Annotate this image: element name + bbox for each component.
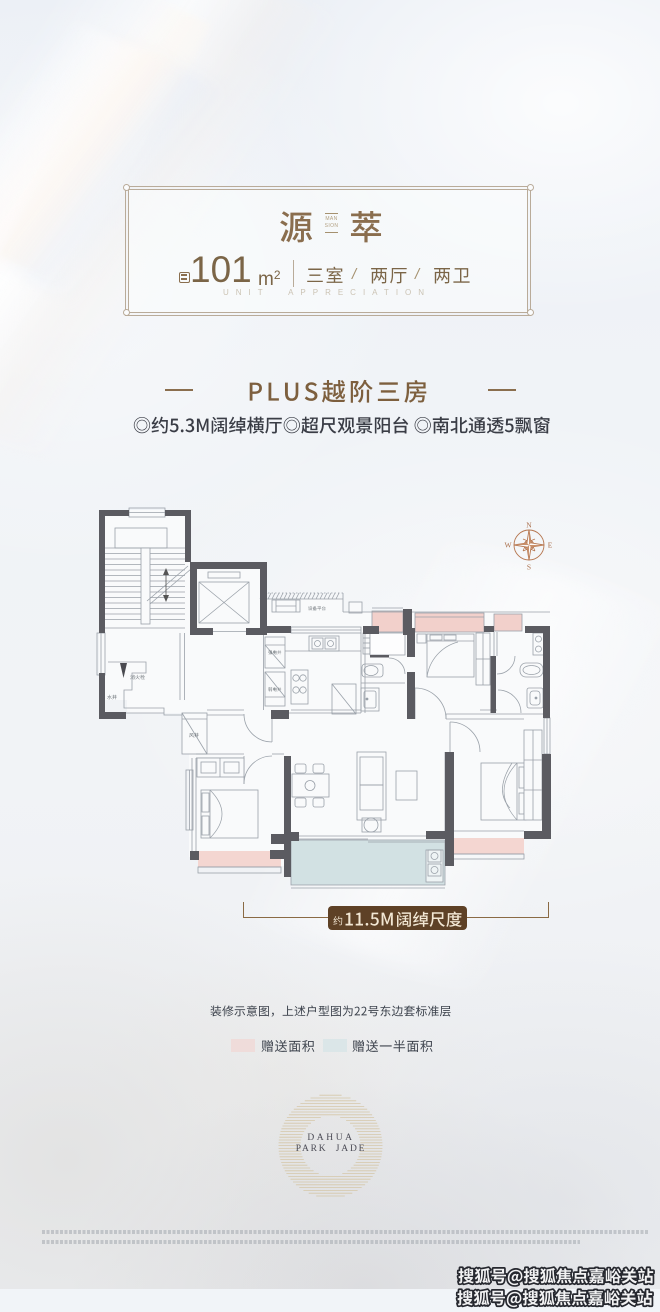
svg-text:W: W bbox=[504, 541, 512, 550]
svg-text:N: N bbox=[526, 521, 532, 530]
svg-text:S: S bbox=[527, 563, 531, 572]
svg-text:E: E bbox=[548, 541, 553, 550]
